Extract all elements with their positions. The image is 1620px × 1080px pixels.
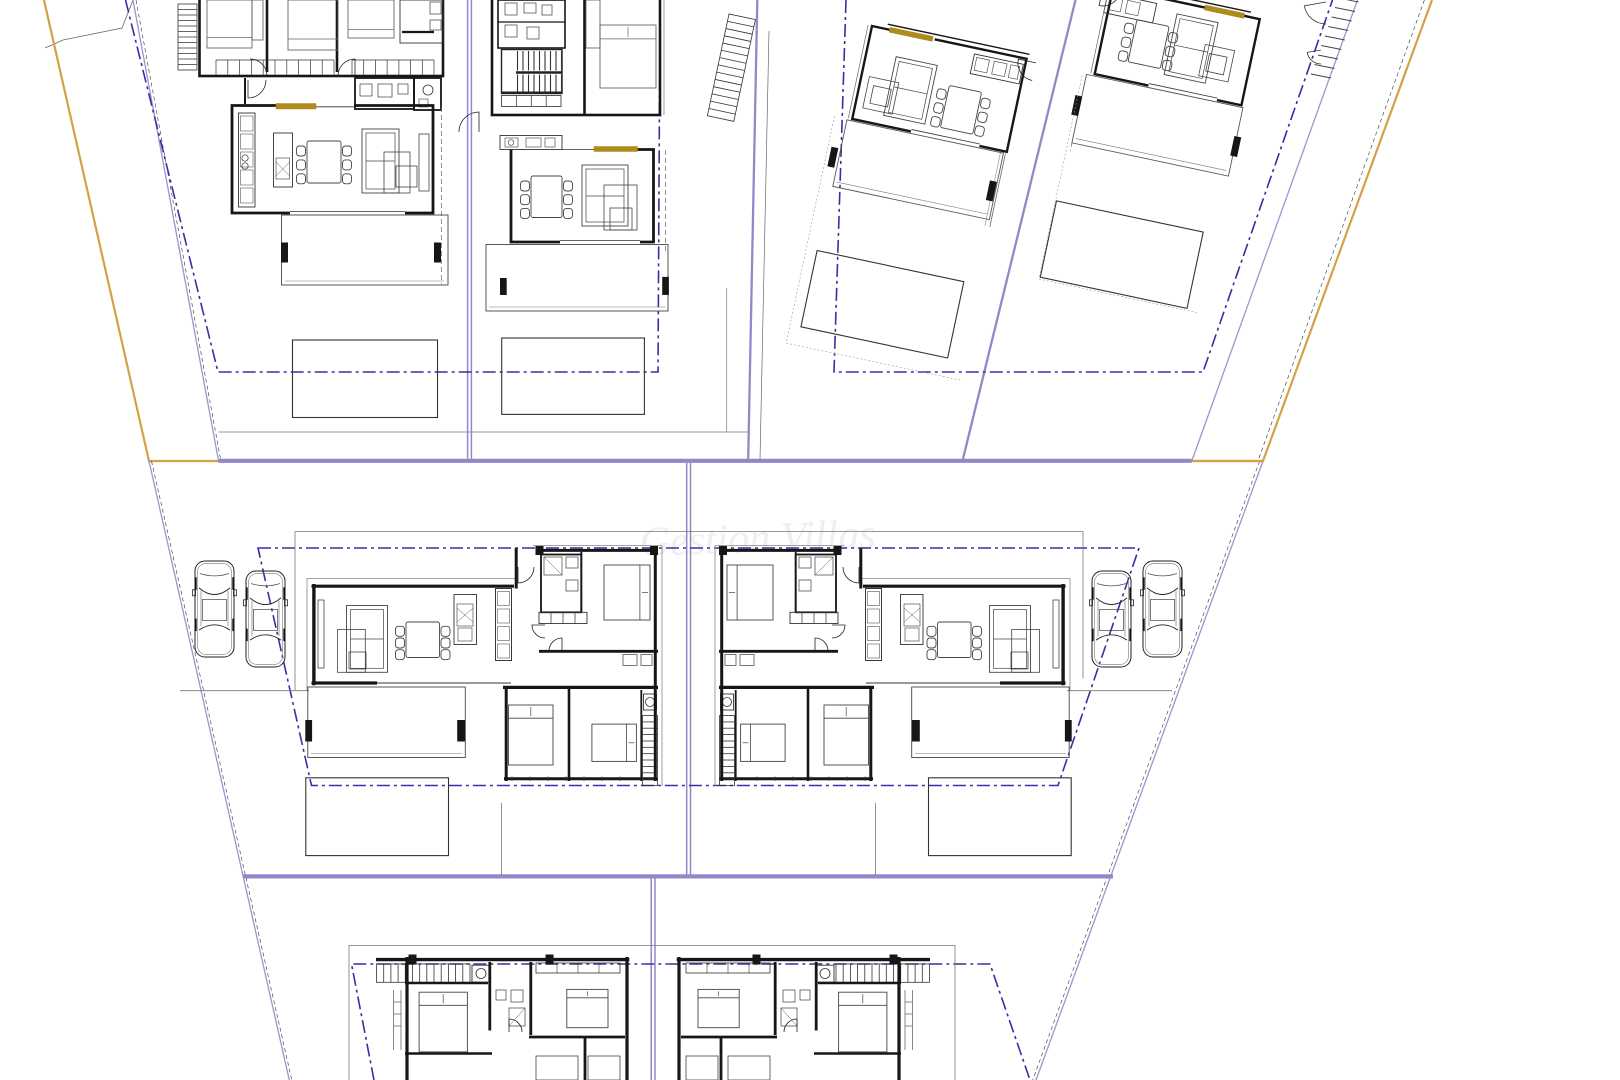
svg-text:Gestion Villas: Gestion Villas (639, 512, 877, 566)
